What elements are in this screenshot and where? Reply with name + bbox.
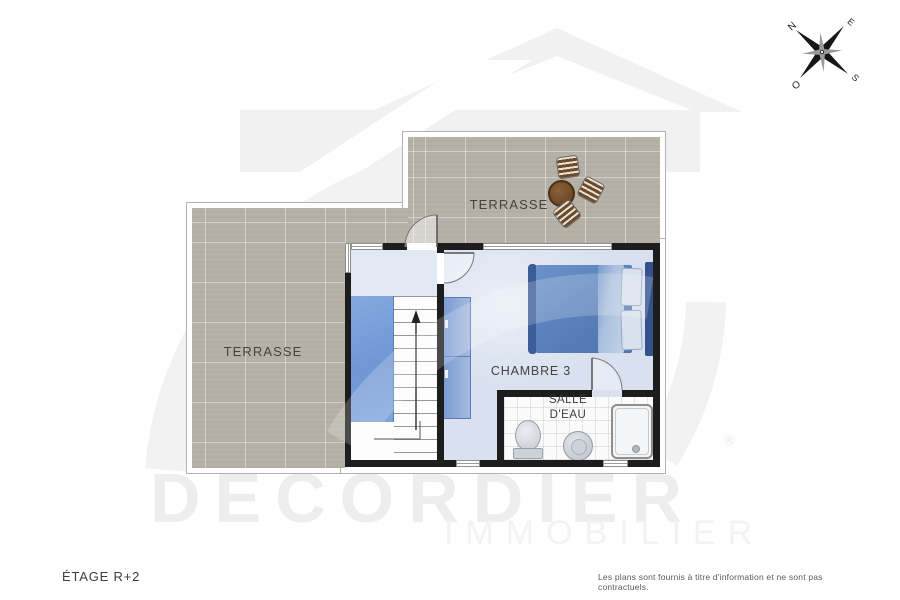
terrace-top-floor [408, 137, 660, 243]
patio-stool [556, 155, 581, 180]
compass-east-label: E [845, 16, 856, 28]
floorplan-page: DECORDIER ® IMMOBILIER [0, 0, 900, 600]
room-label-bedroom: CHAMBRE 3 [466, 364, 596, 378]
wardrobe-handle [445, 320, 448, 328]
wall-segment [622, 390, 653, 397]
bed-pillow [620, 268, 642, 307]
wall-segment [497, 390, 504, 467]
stair-void [351, 296, 394, 422]
room-label-terrace-top: TERRASSE [444, 197, 574, 212]
registered-trademark-icon: ® [724, 432, 735, 449]
compass-star [796, 26, 848, 78]
sink [563, 431, 593, 461]
compass-west-label: O [790, 79, 803, 93]
window [603, 460, 628, 467]
landing-floor [351, 250, 437, 296]
room-label-bathroom: SALLE D'EAU [518, 393, 618, 423]
watermark-subtitle-text: IMMOBILIER [444, 514, 754, 553]
toilet-bowl [515, 420, 541, 451]
bathroom-label-line1: SALLE [518, 393, 618, 408]
wall-segment [383, 243, 407, 250]
sink-basin [571, 439, 587, 455]
room-label-terrace-left: TERRASSE [198, 344, 328, 359]
wall-segment [437, 243, 444, 253]
wardrobe-divider [444, 356, 470, 357]
compass-rose-icon: N E S O [775, 12, 875, 97]
wall-segment [653, 243, 660, 467]
wall-segment [437, 284, 444, 467]
window [456, 460, 480, 467]
bed-folded-sheet [598, 265, 624, 353]
compass-south-label: S [850, 72, 861, 83]
terrace-left-floor [192, 208, 345, 468]
bed-pillow [620, 310, 642, 351]
disclaimer-text: Les plans sont fournis à titre d'informa… [598, 572, 854, 592]
wardrobe-handle [445, 370, 448, 378]
double-bed [528, 262, 654, 356]
shower-drain [632, 445, 640, 453]
compass-north-label: N [786, 20, 799, 33]
stair-treads [394, 296, 437, 459]
window [351, 243, 383, 250]
bathroom-label-line2: D'EAU [518, 408, 618, 423]
toilet-tank [513, 448, 543, 459]
wall-segment [628, 460, 660, 467]
toilet [513, 420, 543, 459]
terrace-connector-floor [345, 208, 410, 243]
wall-segment [345, 273, 351, 467]
floor-level-label: ÉTAGE R+2 [62, 569, 140, 584]
wardrobe [443, 297, 471, 419]
window [483, 243, 612, 250]
